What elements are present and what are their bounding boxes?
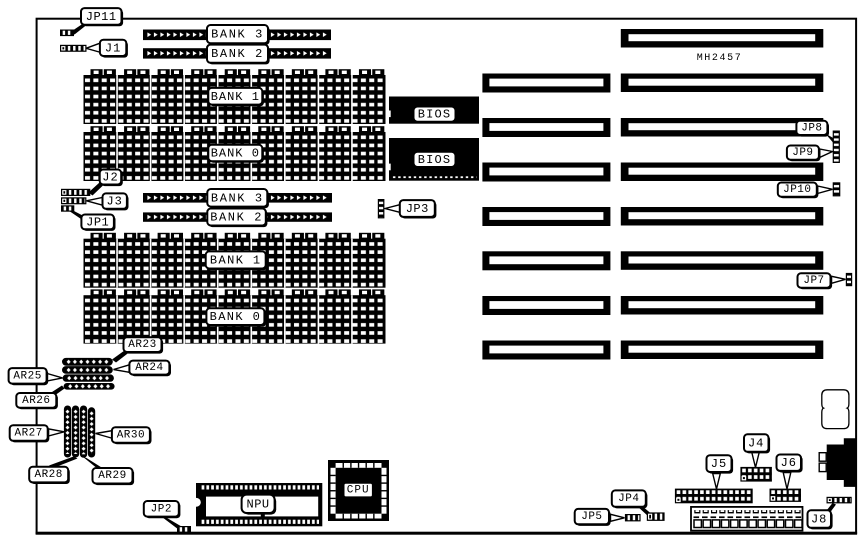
svg-text:JP3: JP3 [406,202,429,216]
svg-text:BANK 2: BANK 2 [210,211,263,225]
svg-text:BANK 2: BANK 2 [211,47,264,61]
svg-text:JP5: JP5 [581,511,602,523]
svg-text:JP9: JP9 [792,147,813,159]
svg-text:J2: J2 [102,171,118,185]
svg-text:BANK 3: BANK 3 [211,28,264,42]
svg-text:AR23: AR23 [128,339,156,351]
svg-text:BANK 0: BANK 0 [211,147,260,161]
svg-text:J8: J8 [811,513,827,527]
svg-text:AR29: AR29 [98,470,126,482]
svg-text:BIOS: BIOS [418,153,452,167]
svg-text:AR25: AR25 [13,370,41,382]
svg-text:NPU: NPU [247,497,270,511]
svg-text:JP2: JP2 [151,503,172,515]
svg-text:JP1: JP1 [86,215,109,229]
svg-text:CPU: CPU [347,485,370,497]
svg-text:JP7: JP7 [803,275,824,287]
svg-text:AR26: AR26 [22,395,50,407]
svg-text:J5: J5 [711,457,727,471]
svg-text:BANK 1: BANK 1 [211,90,260,104]
svg-text:AR30: AR30 [117,429,145,441]
svg-text:JP10: JP10 [783,184,811,196]
svg-text:AR24: AR24 [135,362,163,374]
svg-text:BIOS: BIOS [418,108,452,122]
svg-text:MH2457: MH2457 [697,53,743,64]
svg-text:JP4: JP4 [618,493,639,505]
svg-text:J1: J1 [105,41,121,55]
svg-text:BANK 3: BANK 3 [211,191,264,205]
svg-text:J4: J4 [748,437,764,451]
svg-text:J3: J3 [106,195,122,209]
svg-text:AR27: AR27 [14,428,42,440]
svg-text:JP11: JP11 [86,10,117,24]
svg-text:JP8: JP8 [801,122,822,134]
svg-text:BANK 0: BANK 0 [210,310,262,324]
svg-text:BANK 1: BANK 1 [210,253,262,267]
svg-text:AR28: AR28 [34,469,62,481]
svg-text:J6: J6 [781,456,797,470]
